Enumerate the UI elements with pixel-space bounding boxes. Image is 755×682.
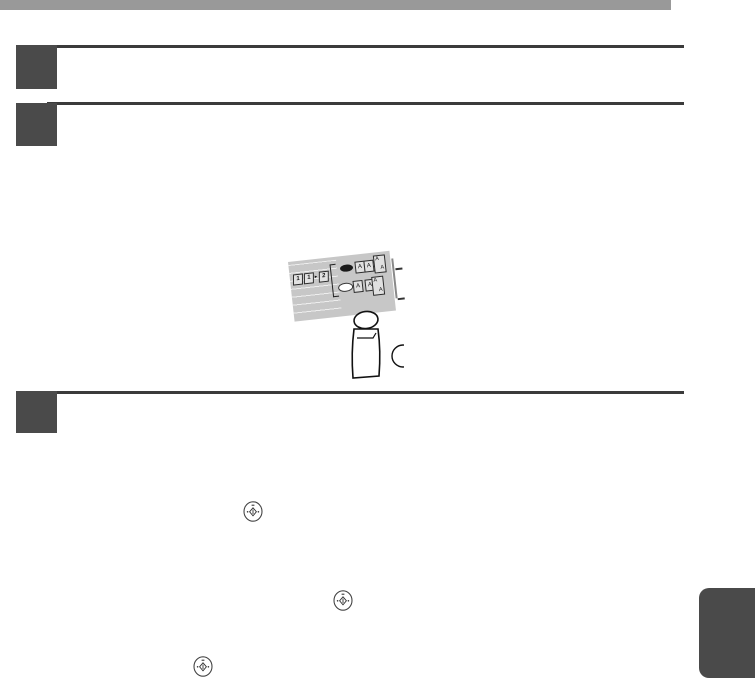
led-on-indicator <box>340 264 354 272</box>
arrow-icon: ▸ <box>314 273 317 282</box>
start-key-icon <box>333 590 353 611</box>
start-key-icon <box>243 501 263 522</box>
finger-outline <box>352 329 380 378</box>
start-key-icon <box>193 656 213 677</box>
original-page-icon: 1 <box>293 273 303 285</box>
manual-page: 1 1 ▸ 2 A A A A A A A A <box>0 0 755 682</box>
step-number-box <box>16 45 57 89</box>
two-sided-sheet-icon: A A <box>371 276 385 296</box>
page-a-icon: A <box>372 277 377 284</box>
page-a-icon: A <box>380 264 385 271</box>
two-sided-page-icon: 2 <box>318 271 328 283</box>
original-page-icon: 1 <box>304 272 314 284</box>
led-off-indicator <box>338 282 354 293</box>
step-number-box <box>16 103 57 146</box>
step-rule <box>47 45 684 48</box>
page-a-icon: A <box>374 256 379 263</box>
adjacent-button <box>392 345 404 367</box>
panel-edge-line <box>391 258 397 298</box>
step-rule <box>47 391 684 394</box>
layout-option-icon: A A <box>354 260 374 274</box>
header-bar <box>0 0 671 10</box>
copy-mode-button <box>353 310 379 330</box>
two-sided-sheet-icon: A A <box>373 254 387 273</box>
panel-dash <box>395 267 402 270</box>
page-a-icon: A <box>379 287 384 294</box>
finger-press-illustration <box>330 303 404 379</box>
chapter-tab <box>699 588 755 678</box>
step-rule <box>47 102 684 105</box>
step-number-box <box>16 391 57 433</box>
control-panel-illustration: 1 1 ▸ 2 A A A A A A A A <box>280 246 412 378</box>
panel-dash <box>398 297 405 300</box>
page-a-icon: A <box>352 280 363 293</box>
